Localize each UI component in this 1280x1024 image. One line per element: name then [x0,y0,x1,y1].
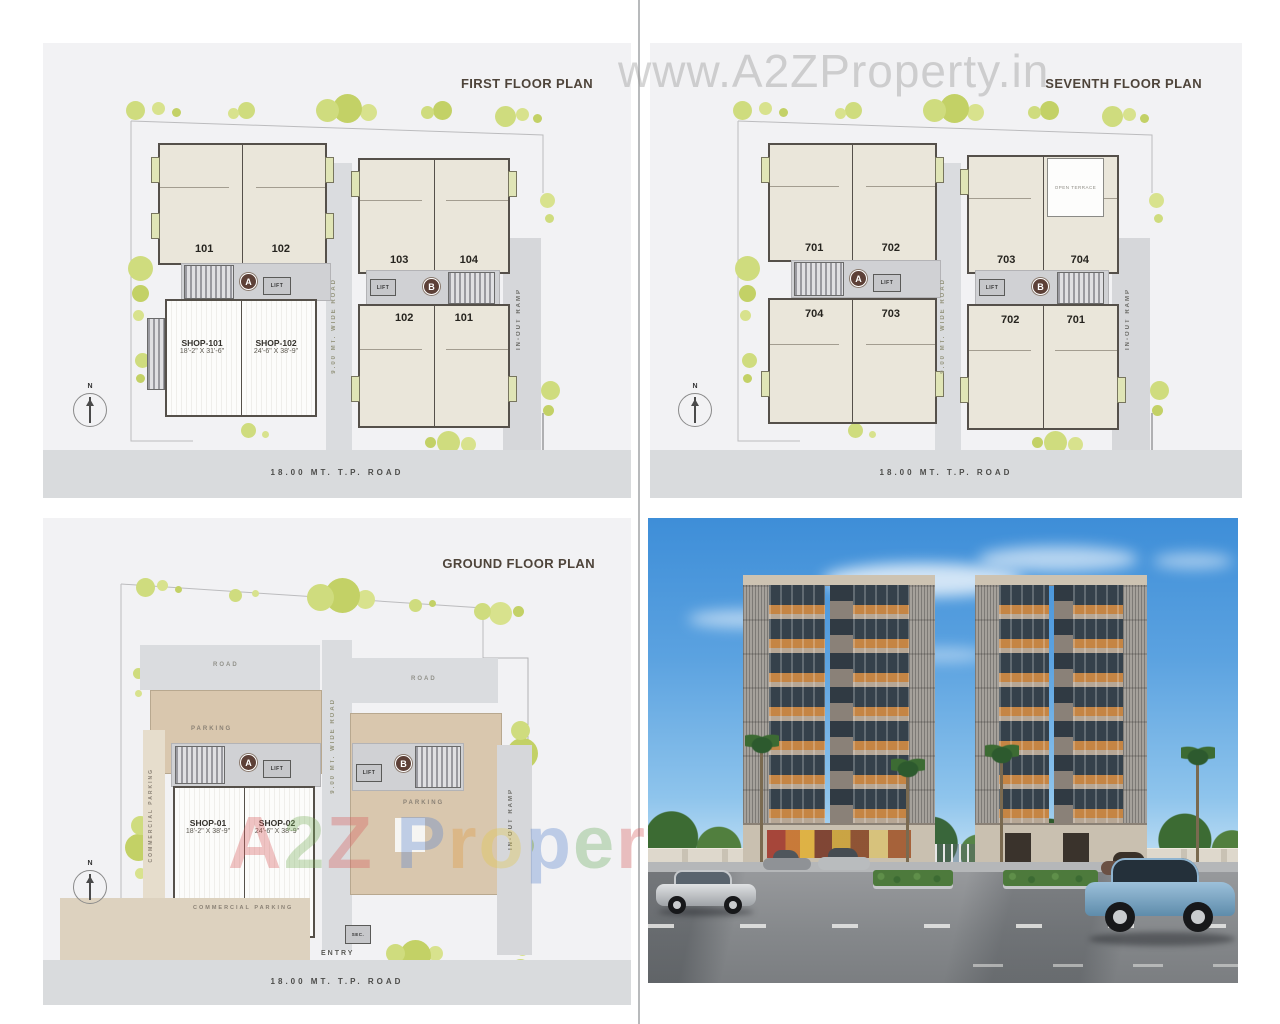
wide-road-label: 9.00 MT. WIDE ROAD [331,278,337,374]
lift-box: LIFT [263,760,291,778]
commercial-parking-side-strip [143,730,165,905]
tp-road-label: 18.00 MT. T.P. ROAD [43,977,631,986]
tp-road-band: 18.00 MT. T.P. ROAD [43,450,631,498]
parked-car [763,850,811,872]
lift-box: LIFT [370,279,396,296]
shop-divider [241,301,242,415]
block-b-marker: B [1032,278,1049,295]
block-a-apartments-bottom: 704 703 [768,298,937,424]
palm-tree [906,770,909,866]
lift-box: LIFT [873,274,901,292]
cloud [1153,553,1233,569]
balcony [960,169,969,195]
building-render [648,518,1238,983]
wide-road-label: 9.00 MT. WIDE ROAD [940,278,946,374]
tp-road-label: 18.00 MT. T.P. ROAD [650,468,1242,477]
shops-area [165,299,317,417]
unit-701b: 701 [1067,314,1085,326]
shop-01-label: SHOP-01 18'-2" X 38'-9" [186,818,230,835]
seventh-floor-plan-panel: SEVENTH FLOOR PLAN 701 702 A LIFT 704 70… [650,43,1242,498]
stairs-icon [147,318,165,390]
balcony [325,213,334,239]
palm-tree [1000,756,1003,864]
trees-layer [43,43,58,58]
balcony [151,213,160,239]
balcony [761,371,770,397]
balcony [935,157,944,183]
unit-703: 703 [882,308,900,320]
unit-102: 102 [272,243,290,255]
road-right-label: ROAD [411,676,437,682]
shop-101-label: SHOP-101 18'-2" X 31'-6" [180,338,224,355]
balcony [325,157,334,183]
parking-a-label: PARKING [191,726,232,732]
block-b-marker: B [395,755,412,772]
lane-marking [973,964,1239,967]
stairs-icon [1057,272,1104,304]
north-compass-icon: N [73,870,107,904]
stairs-icon [175,746,225,784]
balcony [1117,377,1126,403]
brochure-page: FIRST FLOOR PLAN 101 102 A LIFT SHOP-101 [0,0,1280,1024]
tp-road-band: 18.00 MT. T.P. ROAD [43,960,631,1005]
balcony [508,376,517,402]
palm-tree [760,746,763,862]
a2z-watermark-gray: www.A2ZProperty.in [618,44,1049,98]
wide-road-label: 9.00 MT. WIDE ROAD [330,698,336,794]
north-compass-icon: N [73,393,107,427]
block-b-marker: B [423,278,440,295]
unit-104: 104 [460,254,478,266]
ground-floor-plan-panel: GROUND FLOOR PLAN ROAD ROAD PARKING A LI… [43,518,631,1005]
stairs-icon [448,272,495,304]
block-a-marker: A [240,273,257,290]
unit-701: 701 [805,242,823,254]
block-b-apartments-bottom: 702 701 [967,304,1119,430]
unit-704b: 704 [1071,254,1089,266]
palm-tree [1196,758,1199,862]
stairs-icon [794,262,844,296]
unit-702b: 702 [1001,314,1019,326]
tp-road-label: 18.00 MT. T.P. ROAD [43,468,631,477]
balcony [351,376,360,402]
median-hedge [1003,870,1098,886]
balcony [508,171,517,197]
block-a-marker: A [240,754,257,771]
open-terrace: OPEN TERRACE [1047,158,1104,217]
balcony [351,171,360,197]
lift-box: LIFT [263,277,291,295]
trees-layer [43,518,58,533]
block-b-apartments-top: 103 104 [358,158,510,274]
unit-101b: 101 [455,312,473,324]
balcony [151,157,160,183]
unit-102b: 102 [395,312,413,324]
shop-102-label: SHOP-102 24'-6" X 38'-9" [254,338,298,355]
balcony [761,157,770,183]
commercial-parking-side-label: COMMERCIAL PARKING [148,768,154,862]
unit-101: 101 [195,243,213,255]
ramp-label: IN-OUT RAMP [516,288,522,350]
lift-box: LIFT [979,279,1005,296]
unit-704: 704 [805,308,823,320]
security-cabin: SEC. [345,925,371,944]
balcony [935,371,944,397]
ramp-label: IN-OUT RAMP [1125,288,1131,350]
wide-road-strip [322,640,352,950]
wide-road-strip [935,163,961,463]
lift-box: LIFT [356,764,382,782]
median-hedge [873,870,953,886]
wide-road-strip [326,163,352,463]
cloud [978,546,1138,572]
commercial-parking-bottom-label: COMMERCIAL PARKING [193,905,293,911]
unit-702: 702 [882,242,900,254]
block-a-marker: A [850,270,867,287]
block-a-apartments: 101 102 [158,143,327,265]
north-compass-icon: N [678,393,712,427]
silver-sedan [656,870,756,916]
stairs-icon [415,746,461,788]
block-a-apartments-top: 701 702 [768,143,937,262]
road-left-label: ROAD [213,662,239,668]
balcony [960,377,969,403]
a2z-watermark-color: A2Z Property [228,800,650,885]
unit-703b: 703 [997,254,1015,266]
parked-car [818,848,870,872]
blue-sedan [1085,858,1235,952]
tp-road-band: 18.00 MT. T.P. ROAD [650,450,1242,498]
stairs-icon [184,265,234,299]
entry-label: ENTRY [321,950,354,957]
first-floor-plan-panel: FIRST FLOOR PLAN 101 102 A LIFT SHOP-101 [43,43,631,498]
block-b-apartments-bottom: 102 101 [358,304,510,428]
unit-103: 103 [390,254,408,266]
